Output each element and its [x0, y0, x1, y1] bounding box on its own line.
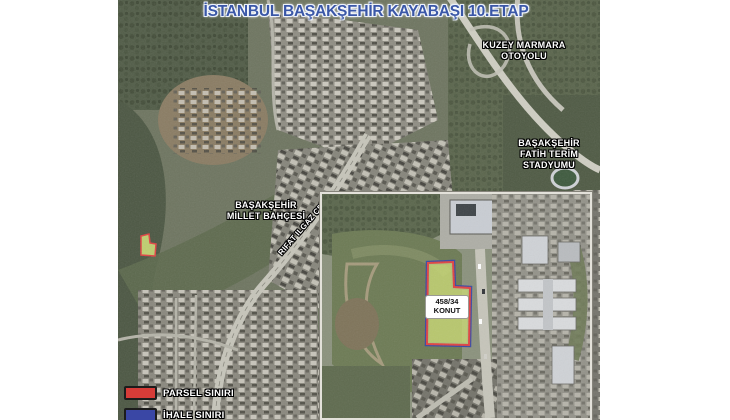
- inset-map: 458/34 KONUT: [320, 192, 592, 420]
- legend: PARSEL SINIRI İHALE SINIRI: [124, 386, 234, 420]
- parsel-siniri-swatch: [124, 386, 157, 400]
- label-line: BAŞAKŞEHİR: [206, 200, 326, 211]
- page: { "title": { "text": "İSTANBUL BAŞAKŞEHİ…: [0, 0, 730, 420]
- label-line: STADYUMU: [489, 160, 600, 171]
- label-kuzey-marmara-otoyolu: KUZEY MARMARA OTOYOLU: [464, 40, 584, 62]
- parcel-callout: 458/34 KONUT: [426, 296, 468, 318]
- label-line: OTOYOLU: [464, 51, 584, 62]
- map-title: İSTANBUL BAŞAKŞEHİR KAYABAŞI 10.ETAP: [118, 3, 600, 21]
- label-line: FATİH TERİM: [489, 149, 600, 160]
- legend-item-parsel-siniri: PARSEL SINIRI: [124, 386, 234, 400]
- legend-label: PARSEL SINIRI: [163, 388, 234, 399]
- label-line: BAŞAKŞEHİR: [489, 138, 600, 149]
- satellite-map: İSTANBUL BAŞAKŞEHİR KAYABAŞI 10.ETAP KUZ…: [118, 0, 600, 420]
- label-fatih-terim-stadyumu: BAŞAKŞEHİR FATİH TERİM STADYUMU: [489, 138, 600, 171]
- label-line: KUZEY MARMARA: [464, 40, 584, 51]
- legend-label: İHALE SINIRI: [163, 410, 225, 420]
- legend-item-ihale-siniri: İHALE SINIRI: [124, 408, 234, 420]
- parcel-type: KONUT: [426, 307, 468, 316]
- ihale-siniri-swatch: [124, 408, 157, 420]
